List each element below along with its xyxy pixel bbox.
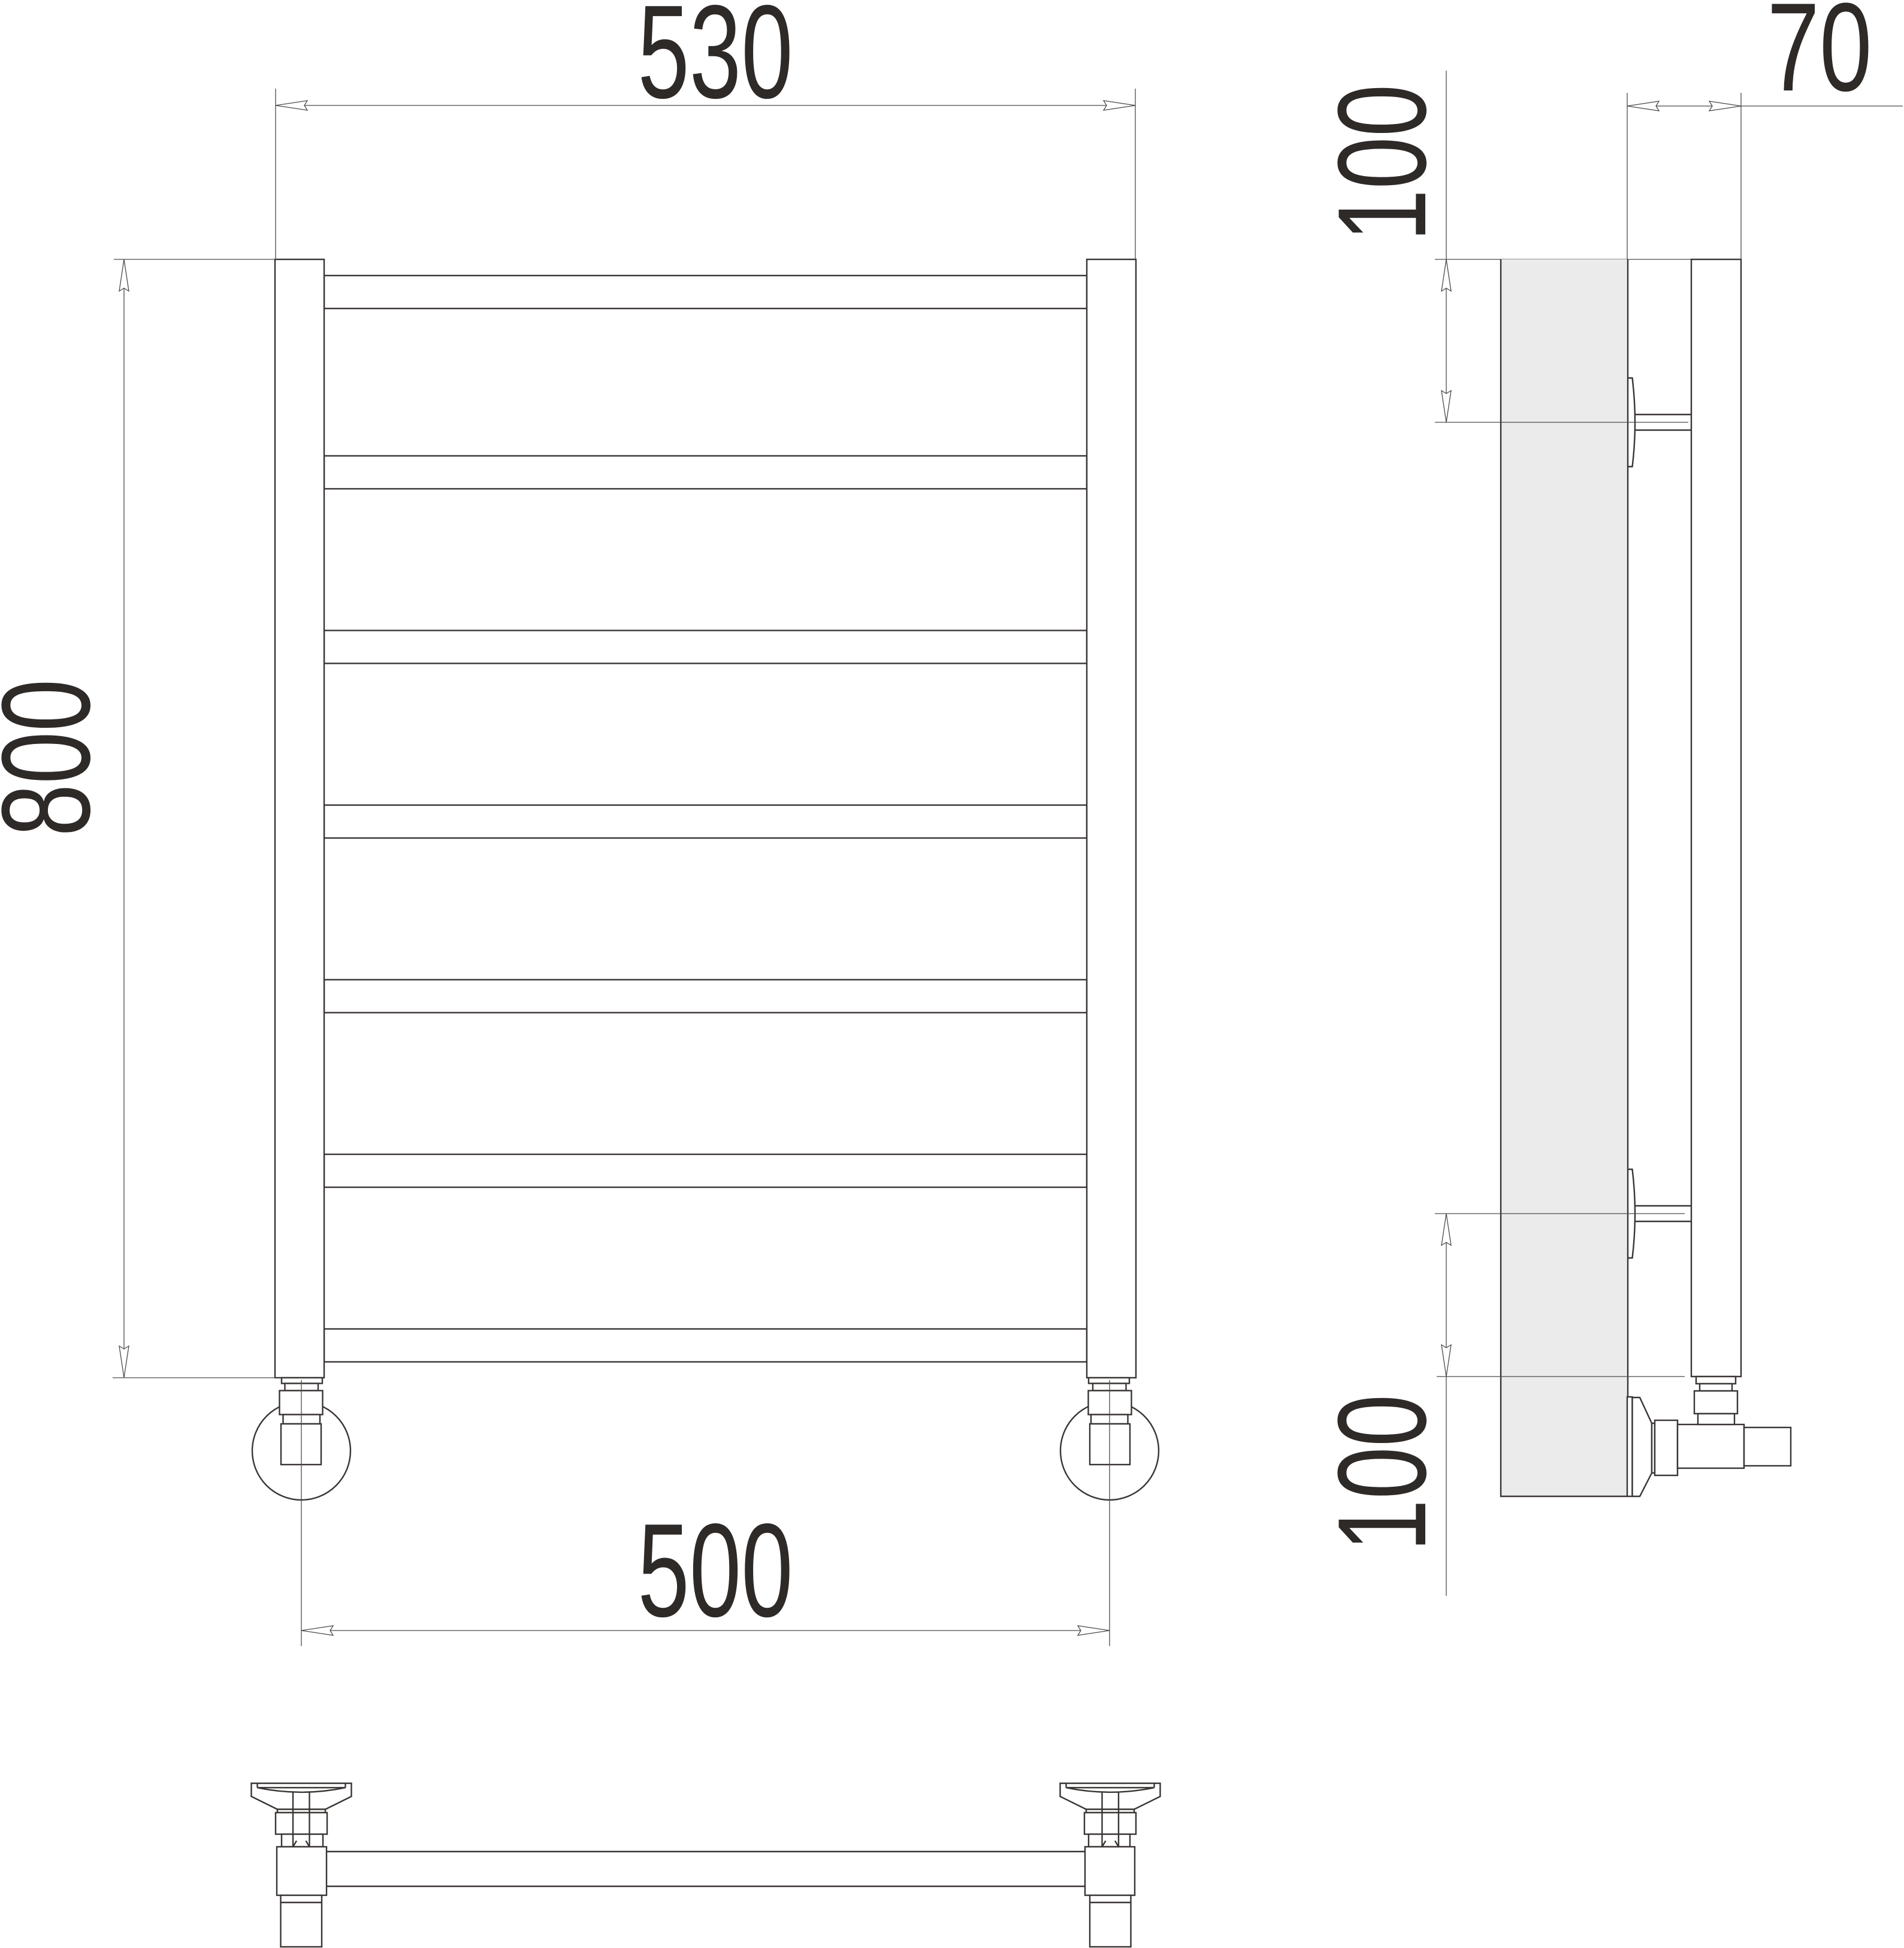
svg-text:100: 100 bbox=[1312, 1395, 1452, 1552]
svg-text:70: 70 bbox=[1767, 0, 1872, 117]
svg-text:100: 100 bbox=[1312, 84, 1452, 242]
svg-text:530: 530 bbox=[637, 0, 793, 126]
svg-text:500: 500 bbox=[637, 1496, 793, 1645]
svg-text:800: 800 bbox=[0, 679, 116, 837]
